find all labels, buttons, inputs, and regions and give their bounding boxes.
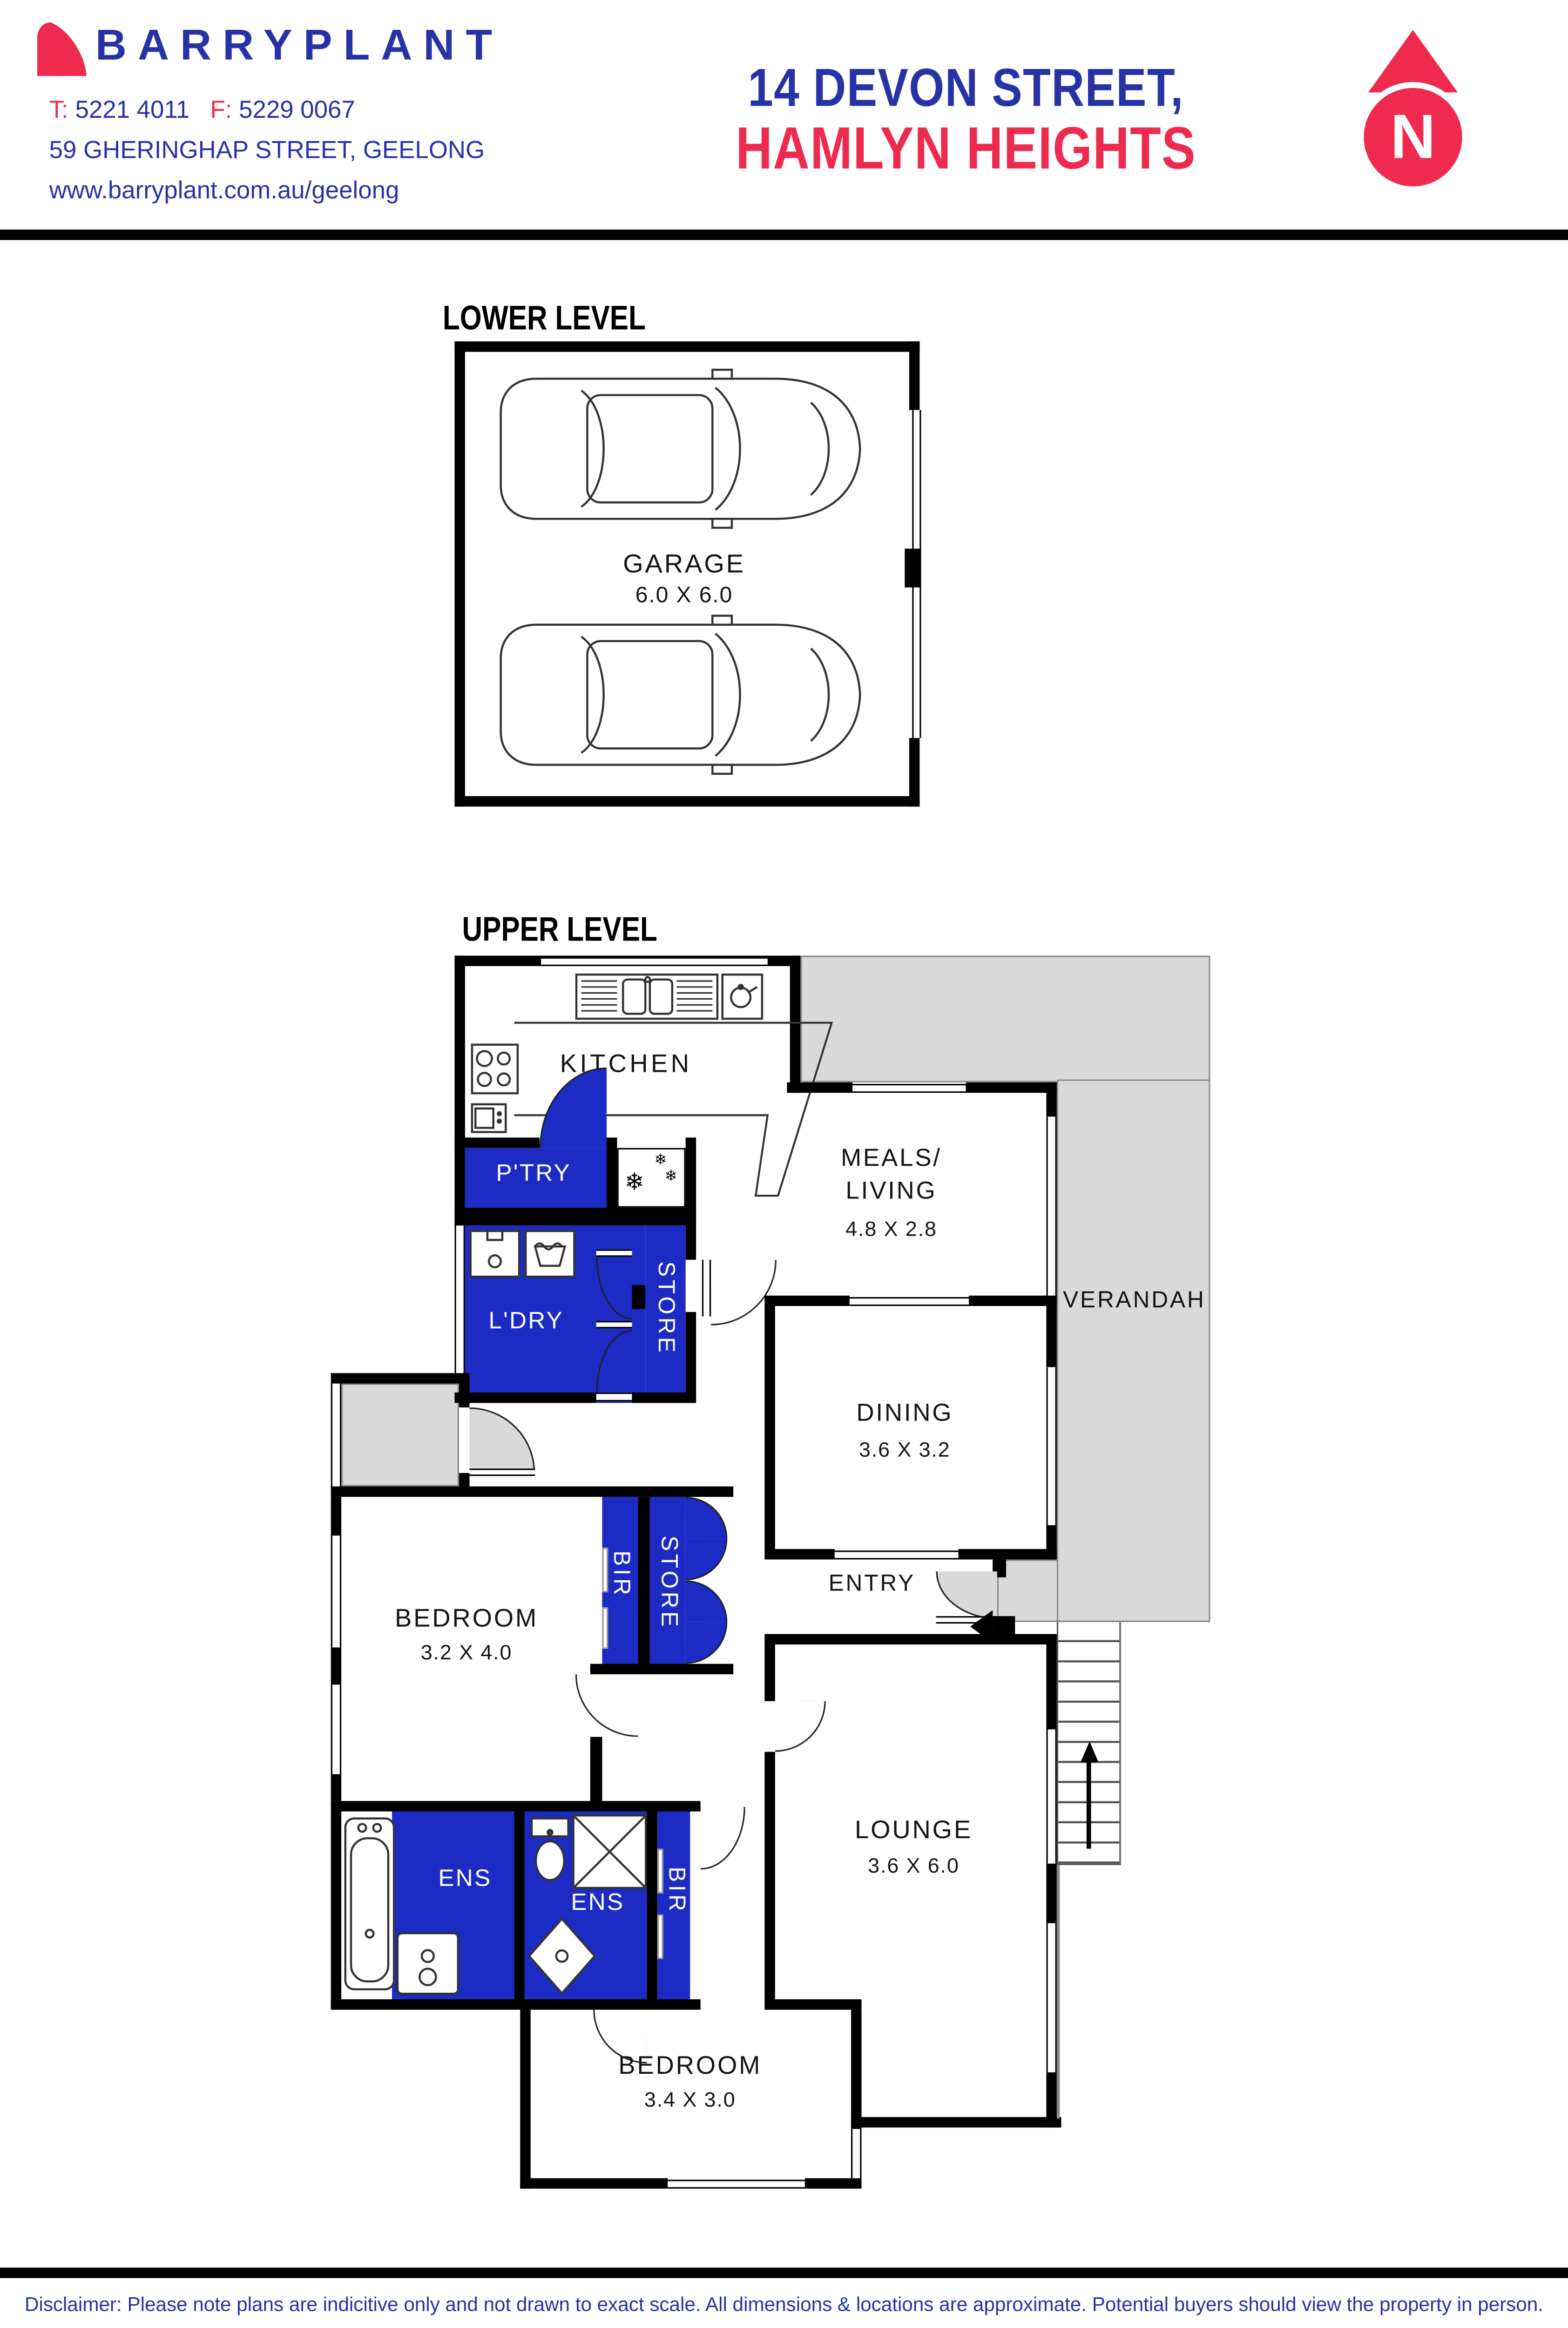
- window: [1046, 1923, 1056, 2072]
- floorplan-sheet: BARRYPLANT T: 5221 4011 F: 5229 0067 59 …: [0, 0, 1568, 2328]
- shower-icon: [572, 1814, 647, 1889]
- svg-text:N: N: [1390, 102, 1435, 171]
- window: [835, 1550, 959, 1559]
- office-website: www.barryplant.com.au/geelong: [49, 177, 399, 206]
- wall: [686, 1312, 696, 1403]
- dining-label: DINING: [856, 1400, 953, 1428]
- car-top-view-icon: [492, 619, 867, 771]
- north-compass-icon: N: [1349, 30, 1477, 191]
- bedroom2-dims: 3.4 X 3.0: [644, 2087, 736, 2111]
- window: [331, 1685, 341, 1774]
- door-leaf: [702, 1260, 711, 1317]
- garage-dims: 6.0 X 6.0: [635, 583, 733, 608]
- meals-living-dims: 4.8 X 2.8: [845, 1217, 937, 1240]
- snowflake-icon: ❄: [624, 1167, 644, 1197]
- window: [852, 1083, 966, 1092]
- window: [668, 2179, 805, 2188]
- window: [331, 1536, 341, 1647]
- kitchen-sink-icon: [575, 974, 718, 1020]
- wall: [331, 1801, 701, 1811]
- wall: [764, 1296, 849, 1306]
- wall: [1046, 1083, 1056, 1117]
- door-arc: [701, 1807, 745, 1869]
- wall: [454, 1208, 696, 1225]
- robe-sliding-door: [602, 1607, 608, 1649]
- wall: [454, 1393, 596, 1403]
- store-door-swing: [686, 1622, 728, 1664]
- wall: [590, 1737, 602, 1811]
- entry-porch-area: [997, 1559, 1058, 1622]
- office-address: 59 GHERINGHAP STREET, GEELONG: [49, 137, 485, 166]
- wall: [632, 1393, 696, 1403]
- store-door-swing: [686, 1580, 728, 1622]
- lounge-label: LOUNGE: [855, 1816, 973, 1846]
- wall: [905, 548, 921, 587]
- barryplant-logo-mark-icon: [36, 21, 89, 78]
- fridge: ❄ ❄ ❄: [617, 1148, 685, 1208]
- wall: [1046, 1644, 1056, 1730]
- wall: [959, 1549, 1057, 1559]
- laundry-label: L'DRY: [488, 1309, 564, 1336]
- door-arc: [575, 1674, 638, 1737]
- footer-divider: [0, 2267, 1568, 2278]
- wall: [764, 1634, 1056, 1644]
- wall: [331, 1373, 470, 1383]
- wall: [454, 956, 465, 1215]
- wall: [331, 1999, 701, 2010]
- wall: [632, 1285, 645, 1309]
- wall: [909, 341, 919, 410]
- wall: [331, 1497, 341, 1536]
- window: [1046, 1367, 1056, 1525]
- phone-f-number: 5229 0067: [239, 97, 355, 124]
- entry-label: ENTRY: [829, 1571, 916, 1598]
- wall: [851, 2010, 861, 2129]
- wall: [454, 341, 465, 806]
- verandah-area: [800, 956, 1210, 1083]
- door-threshold: [596, 1249, 632, 1257]
- wall: [764, 1644, 775, 1701]
- snowflake-icon: ❄: [665, 1169, 677, 1185]
- listing-title-line2: HAMLYN HEIGHTS: [736, 116, 1196, 183]
- wall: [764, 1306, 775, 1549]
- bir-hall-label: BIR: [607, 1550, 634, 1598]
- bedroom2-label: BEDROOM: [618, 2051, 762, 2081]
- wall: [454, 796, 919, 806]
- stairs-up-arrow-shaft: [1087, 1759, 1090, 1848]
- robe-sliding-door: [657, 1914, 663, 1959]
- window: [331, 1384, 341, 1487]
- wall: [514, 1812, 525, 1999]
- pantry-label: P'TRY: [496, 1161, 571, 1188]
- wall: [969, 1296, 1057, 1306]
- wall: [638, 1497, 650, 1664]
- store-upper-label: STORE: [651, 1261, 678, 1355]
- wall: [590, 1664, 733, 1674]
- wall: [851, 2117, 1061, 2127]
- plan-credit-prefix: Plan by ABODE Productions -: [503, 2326, 769, 2328]
- phone-line: T: 5221 4011 F: 5229 0067: [49, 97, 355, 125]
- vanity-icon: [527, 1917, 596, 1995]
- wall: [520, 2178, 668, 2188]
- garage-label: GARAGE: [623, 548, 745, 580]
- phone-t-number: 5221 4011: [75, 97, 189, 124]
- door-leaf: [469, 1469, 535, 1476]
- brand-name: BARRYPLANT: [95, 22, 503, 72]
- microwave-icon: [471, 1103, 507, 1133]
- meals-living-label-line1: MEALS/: [841, 1145, 942, 1173]
- porch-door-swing: [469, 1408, 535, 1473]
- window: [541, 956, 768, 965]
- bedroom1-label: BEDROOM: [395, 1604, 538, 1634]
- bathtub-icon: [345, 1817, 395, 1990]
- stair-rail-line: [1057, 1865, 1059, 2118]
- wall: [764, 1999, 861, 2010]
- washing-machine-icon: [525, 1230, 575, 1278]
- wall: [331, 1812, 341, 2010]
- window: [850, 1296, 969, 1305]
- store-door-swing: [686, 1497, 728, 1539]
- meals-living-label-line2: LIVING: [845, 1178, 937, 1206]
- lounge-dims: 3.6 X 6.0: [868, 1853, 960, 1877]
- verandah-label: VERANDAH: [1063, 1288, 1205, 1315]
- wall: [787, 1083, 852, 1093]
- wall: [1046, 1299, 1056, 1367]
- wall: [1046, 1864, 1056, 1923]
- wall: [331, 1486, 733, 1496]
- wall: [454, 341, 919, 352]
- wall: [331, 1774, 341, 1801]
- dining-dims: 3.6 X 3.2: [859, 1437, 951, 1461]
- wall: [454, 1137, 539, 1148]
- window: [454, 1215, 465, 1373]
- wall: [331, 1647, 341, 1685]
- store-door-swing: [686, 1539, 728, 1581]
- wall: [647, 1812, 657, 1999]
- stairs-up-arrow-head: [1080, 1741, 1097, 1762]
- verandah-area: [1057, 1079, 1210, 1622]
- car-top-view-icon: [492, 373, 867, 525]
- upper-level-heading: UPPER LEVEL: [462, 909, 657, 949]
- wall: [459, 1473, 469, 1487]
- bir-bedroom-label: BIR: [662, 1867, 689, 1914]
- door-arc: [775, 1701, 826, 1752]
- phone-f-label: F:: [210, 97, 232, 124]
- listing-title-line1: 14 DEVON STREET,: [748, 57, 1183, 119]
- plan-credit-site: www.abodeproductions.com.au: [769, 2326, 1065, 2328]
- wall: [764, 1549, 834, 1559]
- toilet-icon: [397, 1932, 459, 1995]
- phone-t-label: T:: [49, 97, 68, 124]
- store-hall-label: STORE: [654, 1536, 681, 1630]
- lower-level-heading: LOWER LEVEL: [443, 298, 646, 338]
- wall: [764, 1752, 775, 2010]
- door-threshold: [596, 1393, 632, 1401]
- wall: [459, 1384, 469, 1408]
- plan-credit: Plan by ABODE Productions - www.abodepro…: [503, 2326, 1065, 2328]
- kettle-appliance-icon: [722, 974, 764, 1020]
- wall: [909, 738, 919, 806]
- laundry-trough-icon: [469, 1230, 520, 1278]
- wall: [805, 2178, 862, 2188]
- cooktop-icon: [471, 1043, 519, 1094]
- wall: [520, 2010, 530, 2188]
- ens-second-label: ENS: [571, 1890, 624, 1917]
- disclaimer-text: Disclaimer: Please note plans are indici…: [25, 2293, 1543, 2315]
- window: [851, 2129, 861, 2179]
- header-divider: [0, 230, 1568, 240]
- window: [1046, 1117, 1056, 1299]
- window: [1046, 1729, 1056, 1863]
- ens-main-label: ENS: [438, 1867, 492, 1894]
- toilet-icon: [531, 1817, 569, 1889]
- wall: [607, 1137, 617, 1218]
- side-porch-area: [341, 1384, 459, 1487]
- snowflake-icon: ❄: [654, 1152, 667, 1169]
- wall: [966, 1083, 1057, 1093]
- door-threshold: [596, 1321, 632, 1328]
- bedroom1-dims: 3.2 X 4.0: [421, 1640, 513, 1664]
- wall: [686, 1137, 696, 1260]
